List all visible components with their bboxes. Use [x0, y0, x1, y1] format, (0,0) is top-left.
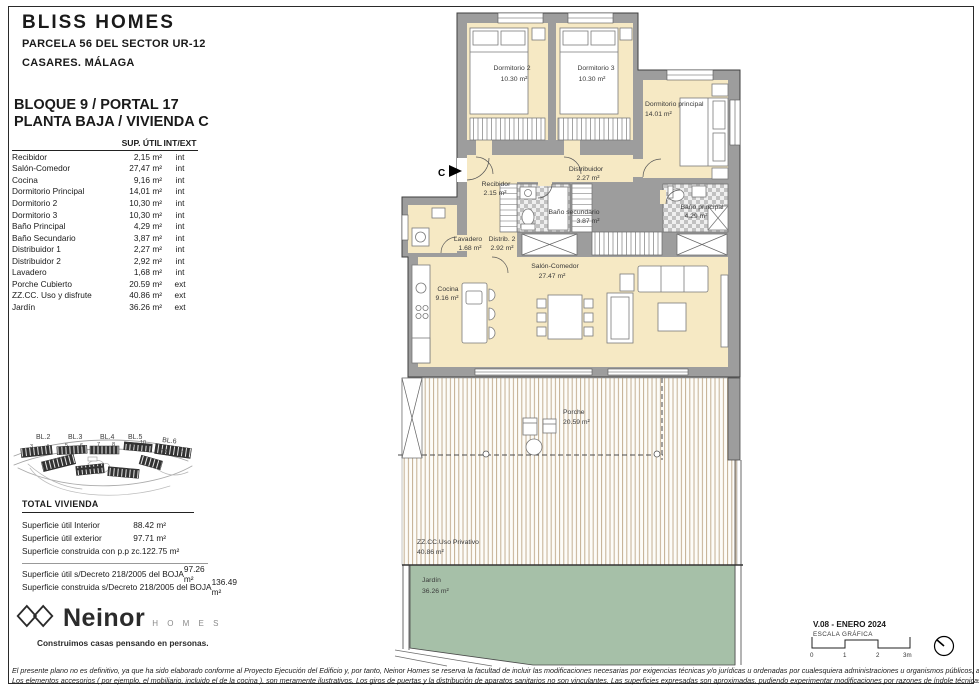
- room-label: Lavadero: [454, 236, 483, 243]
- svg-text:1: 1: [843, 652, 847, 659]
- porche-wall: [728, 378, 740, 460]
- porche-post: [483, 451, 489, 457]
- porche-label: Porche: [563, 409, 585, 416]
- svg-text:4: 4: [46, 444, 49, 450]
- room-label: Salón-Comedor: [531, 263, 579, 270]
- porche-post: [654, 451, 660, 457]
- map-pool: [88, 457, 97, 461]
- svg-text:5: 5: [65, 443, 68, 449]
- bath-door-gap: [538, 180, 552, 186]
- tv-unit: [721, 275, 728, 347]
- outdoor-areas: Porche 20.59 m² ZZ.CC.Uso Privativo 40.8…: [395, 378, 743, 666]
- room-area: 1.68 m²: [458, 245, 482, 252]
- room-area: 14.01 m²: [645, 111, 673, 118]
- room-area: 3.87 m²: [576, 218, 600, 225]
- garden-area: [410, 565, 735, 665]
- toilet: [522, 209, 534, 225]
- nightstand: [620, 28, 632, 40]
- version-label: V.08 - ENERO 2024: [813, 620, 886, 629]
- svg-text:7: 7: [97, 442, 100, 448]
- svg-text:3: 3: [30, 444, 33, 450]
- zzcc-label: ZZ.CC.Uso Privativo: [417, 539, 479, 546]
- footer-disclaimer-line1: El presente plano no es definitivo, ya q…: [12, 666, 968, 675]
- map-label: BL.6: [162, 437, 177, 445]
- room-label: Distrib. 2: [489, 236, 516, 243]
- map-label: BL.2: [36, 434, 51, 441]
- dining-table: [548, 295, 582, 339]
- room-label: Distribuidor: [569, 166, 604, 173]
- map-label: BL.4: [100, 434, 115, 441]
- svg-text:10: 10: [140, 440, 146, 446]
- side-table: [620, 274, 634, 291]
- site-location-map: BL.2 BL.3 BL.4 BL.5 BL.6 3 4 5 6 7 8 9 1…: [14, 434, 192, 495]
- plan-sheet: BLISS HOMES PARCELA 56 DEL SECTOR UR-12 …: [0, 0, 979, 690]
- room-label: Dormitorio 3: [577, 65, 614, 72]
- map-label: BL.3: [68, 434, 83, 441]
- svg-text:8: 8: [112, 442, 115, 448]
- north-arrow-icon: [935, 637, 954, 656]
- bath-door-gap: [660, 190, 666, 204]
- laundry-sink: [432, 208, 445, 218]
- svg-text:3m: 3m: [903, 652, 912, 659]
- svg-text:6: 6: [80, 443, 83, 449]
- svg-text:2: 2: [876, 652, 880, 659]
- svg-text:C: C: [438, 168, 445, 179]
- room-area: 9.16 m²: [435, 295, 459, 302]
- sofa: [638, 266, 708, 292]
- room-label: Dormitorio principal: [645, 101, 704, 108]
- nightstand: [532, 28, 545, 40]
- patio-band: [522, 232, 727, 255]
- room-area: 10.30 m²: [501, 76, 529, 83]
- side-stair: [402, 378, 422, 458]
- scale-label: ESCALA GRÁFICA: [813, 629, 873, 638]
- garden-label: Jardín: [422, 577, 441, 584]
- svg-text:9: 9: [131, 444, 134, 450]
- nightstand: [712, 84, 728, 96]
- room-area: 4.29 m²: [684, 213, 708, 220]
- room-area: 2.27 m²: [576, 175, 600, 182]
- room-label: Recibidor: [482, 181, 511, 188]
- svg-text:0: 0: [810, 652, 814, 659]
- wardrobe: [558, 118, 630, 140]
- footer-disclaimer-line2: Los elementos accesorios ( por ejemplo, …: [12, 676, 968, 685]
- room-area: 2.15 m²: [483, 190, 507, 197]
- deck-area: [402, 378, 737, 565]
- floor-plan-drawing: BL.2 BL.3 BL.4 BL.5 BL.6 3 4 5 6 7 8 9 1…: [0, 0, 979, 690]
- garden-area-label: 36.26 m²: [422, 588, 450, 595]
- room-label: Cocina: [437, 286, 458, 293]
- scale-ticks: 0 1 2 3m: [810, 652, 912, 659]
- wardrobe: [470, 118, 545, 140]
- sink: [692, 186, 706, 197]
- kitchen-sink: [416, 283, 426, 293]
- dwelling-plan: C Dormitorio 2 10.30 m² Dormitorio 3 10.…: [402, 13, 740, 377]
- title-block: V.08 - ENERO 2024 ESCALA GRÁFICA 0 1 2 3…: [810, 620, 954, 659]
- room-area: 27.47 m²: [539, 273, 567, 280]
- room-label: Baño secundario: [548, 209, 599, 216]
- coffee-table: [658, 303, 686, 331]
- zzcc-area: 40.86 m²: [417, 549, 445, 556]
- room-label: Dormitorio 2: [493, 65, 530, 72]
- room-area: 10.30 m²: [579, 76, 607, 83]
- room-area: 2.92 m²: [490, 245, 514, 252]
- svg-text:12: 12: [161, 449, 167, 455]
- svg-text:11: 11: [179, 448, 185, 454]
- room-label: Baño principal: [680, 204, 724, 211]
- nightstand: [712, 168, 728, 179]
- fridge: [412, 338, 430, 363]
- scale-bar: [812, 637, 910, 648]
- porche-area: 20.59 m²: [563, 419, 591, 426]
